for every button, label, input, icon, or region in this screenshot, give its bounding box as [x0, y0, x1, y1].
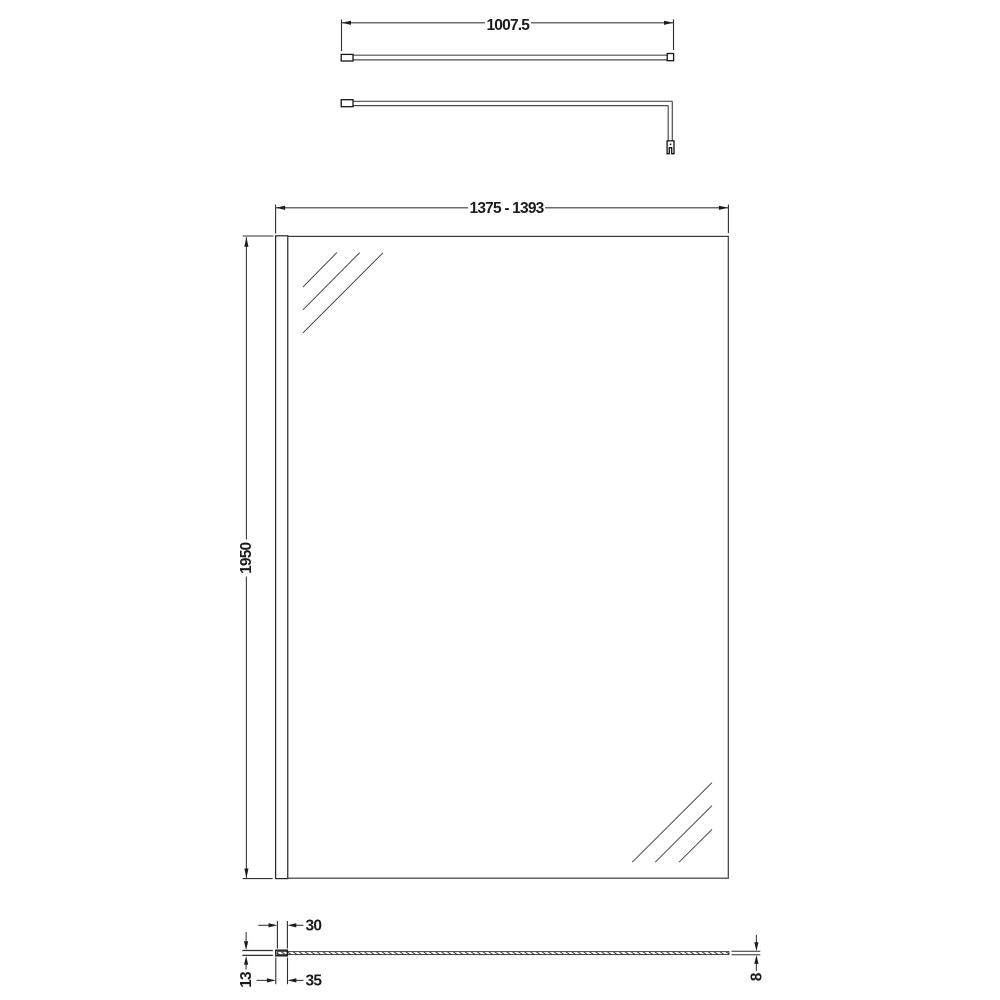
svg-text:1950: 1950 — [238, 542, 255, 573]
svg-text:1007.5: 1007.5 — [486, 17, 530, 34]
svg-text:1375 - 1393: 1375 - 1393 — [470, 200, 545, 217]
svg-text:30: 30 — [306, 918, 322, 935]
svg-text:8: 8 — [748, 972, 765, 981]
svg-text:13: 13 — [238, 971, 255, 988]
svg-text:35: 35 — [306, 973, 323, 990]
